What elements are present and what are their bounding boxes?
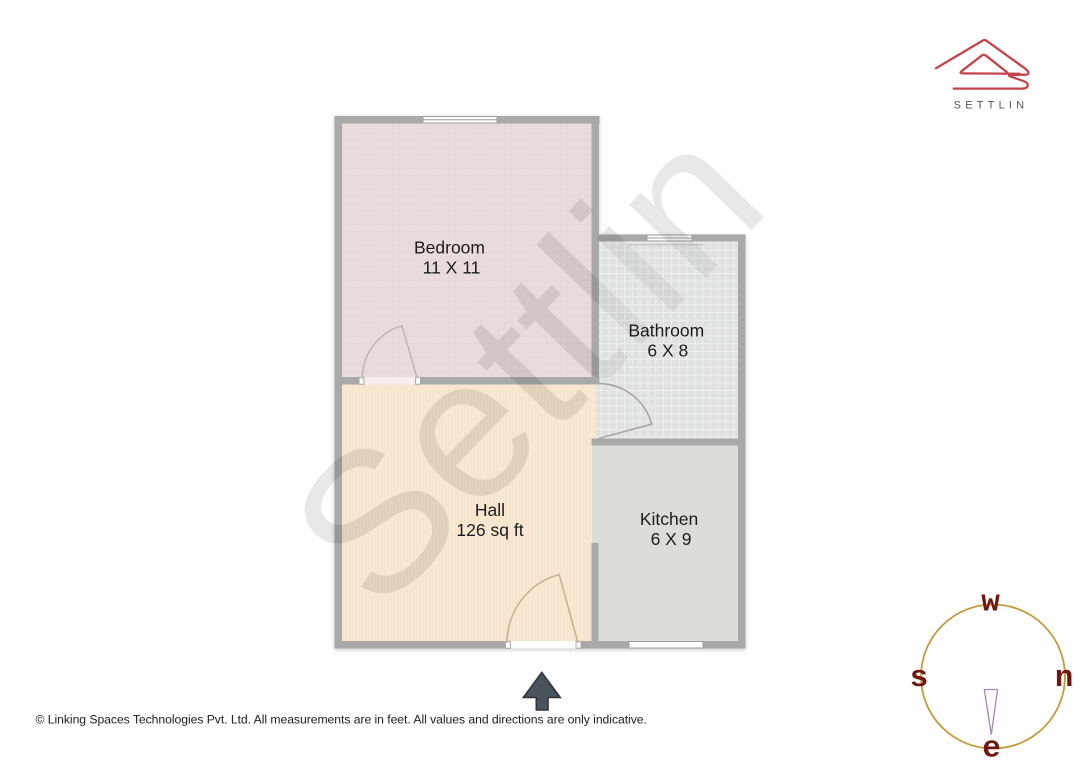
- svg-text:Hall: Hall: [475, 500, 505, 520]
- svg-text:Bathroom: Bathroom: [628, 321, 704, 341]
- svg-text:s: s: [910, 661, 929, 696]
- svg-text:SETTLIN: SETTLIN: [954, 100, 1029, 112]
- svg-text:w: w: [981, 586, 1000, 621]
- svg-text:e: e: [982, 732, 1001, 764]
- svg-text:© Linking Spaces Technologies: © Linking Spaces Technologies Pvt. Ltd. …: [36, 713, 647, 727]
- svg-text:11 X 11: 11 X 11: [423, 258, 481, 278]
- svg-text:Bedroom: Bedroom: [414, 238, 485, 258]
- svg-text:126 sq ft: 126 sq ft: [456, 520, 523, 540]
- svg-text:n: n: [1055, 661, 1074, 696]
- svg-text:6 X 8: 6 X 8: [647, 341, 688, 361]
- svg-text:Kitchen: Kitchen: [640, 509, 698, 529]
- svg-text:6 X 9: 6 X 9: [651, 529, 692, 549]
